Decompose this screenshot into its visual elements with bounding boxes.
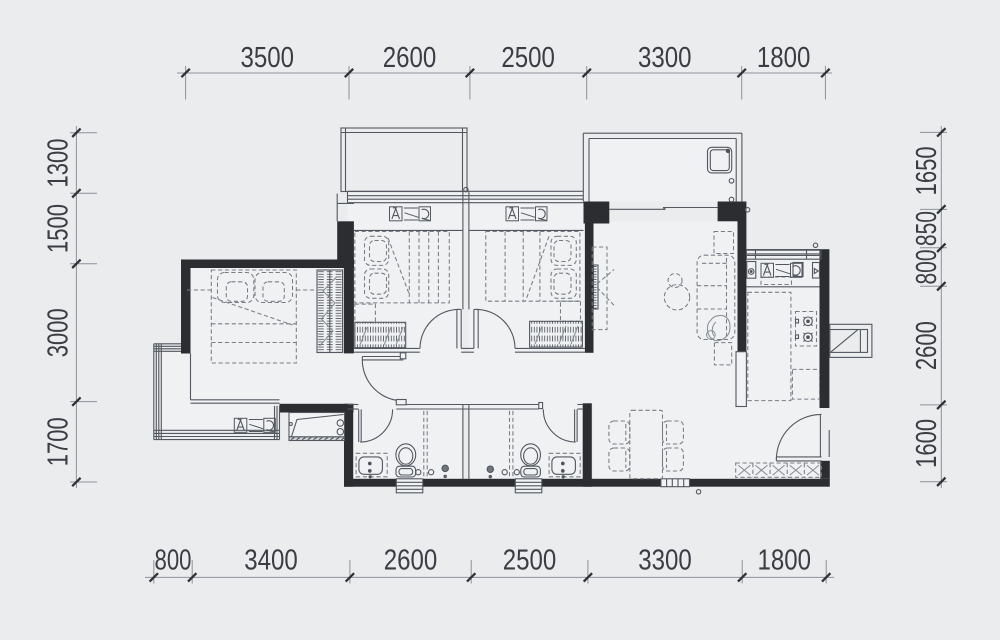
svg-text:800: 800 xyxy=(155,545,192,577)
svg-text:3500: 3500 xyxy=(241,42,295,74)
svg-text:2500: 2500 xyxy=(501,42,555,74)
svg-text:1500: 1500 xyxy=(43,204,75,253)
svg-text:3300: 3300 xyxy=(638,42,692,74)
svg-text:1650: 1650 xyxy=(911,146,943,195)
svg-text:2500: 2500 xyxy=(503,545,557,577)
svg-text:3400: 3400 xyxy=(244,545,298,577)
svg-text:1800: 1800 xyxy=(757,42,811,74)
svg-text:3000: 3000 xyxy=(43,308,75,357)
svg-text:2600: 2600 xyxy=(384,545,438,577)
svg-text:1600: 1600 xyxy=(911,419,943,468)
svg-text:2600: 2600 xyxy=(911,321,943,370)
svg-text:1800: 1800 xyxy=(757,545,811,577)
svg-text:2600: 2600 xyxy=(383,42,437,74)
svg-text:1700: 1700 xyxy=(43,417,75,466)
svg-text:1300: 1300 xyxy=(43,139,75,188)
svg-text:800: 800 xyxy=(911,250,943,285)
svg-text:3300: 3300 xyxy=(638,545,692,577)
svg-text:850: 850 xyxy=(911,211,943,246)
